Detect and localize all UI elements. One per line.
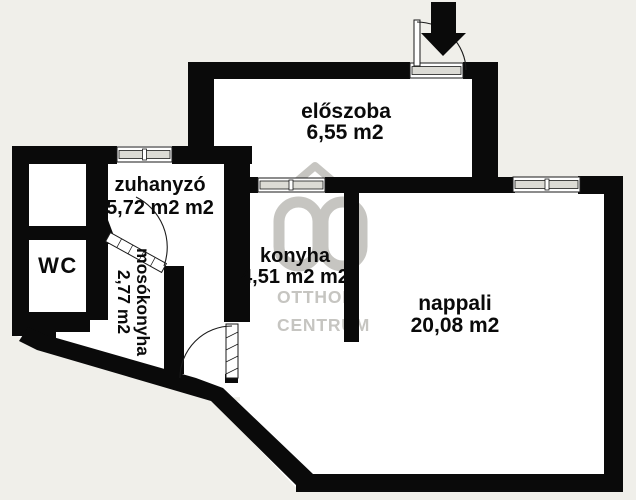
wall (188, 62, 214, 154)
window-eloszoba-konyha (258, 178, 325, 192)
room-area: 2,77 m2 (114, 270, 134, 334)
room-label-eloszoba: előszoba 6,55 m2 (301, 100, 391, 144)
room-area: 4,51 m2 m2 (241, 266, 349, 288)
room-area: 5,72 m2 m2 (106, 197, 214, 219)
room-label-wc: WC (38, 253, 78, 278)
wall (296, 474, 623, 492)
window-nappali (513, 177, 580, 192)
room-area: 20,08 m2 (411, 314, 500, 337)
room-name: előszoba (301, 100, 391, 123)
wall (604, 176, 623, 492)
wall (20, 226, 88, 240)
window-zuhanyzo (117, 147, 172, 162)
wall (578, 176, 623, 194)
window-divider (143, 149, 147, 160)
floor-plan-canvas: OTTHON CENTRUM (0, 0, 636, 500)
door-leaf (226, 324, 238, 378)
wall (344, 186, 359, 342)
room-name: zuhanyzó (114, 174, 205, 196)
room-name: WC (38, 253, 78, 278)
entrance-arrow-icon (421, 2, 466, 56)
door-threshold-sill (412, 67, 461, 75)
room-label-zuhanyzo: zuhanyzó 5,72 m2 m2 (106, 174, 214, 219)
door-leaf (414, 20, 420, 66)
wall (12, 146, 29, 336)
room-name: mosókonyha (133, 248, 153, 356)
wall (224, 150, 250, 322)
room-name: konyha (260, 245, 331, 267)
room-area: 6,55 m2 (306, 121, 383, 144)
room-name: nappali (418, 292, 492, 315)
wall (472, 62, 498, 193)
wall (188, 62, 410, 79)
window-divider (545, 179, 549, 190)
wall (164, 266, 184, 374)
watermark-text-line1: OTTHON (277, 287, 356, 307)
window-divider (289, 180, 293, 190)
room-label-nappali: nappali 20,08 m2 (411, 292, 500, 337)
